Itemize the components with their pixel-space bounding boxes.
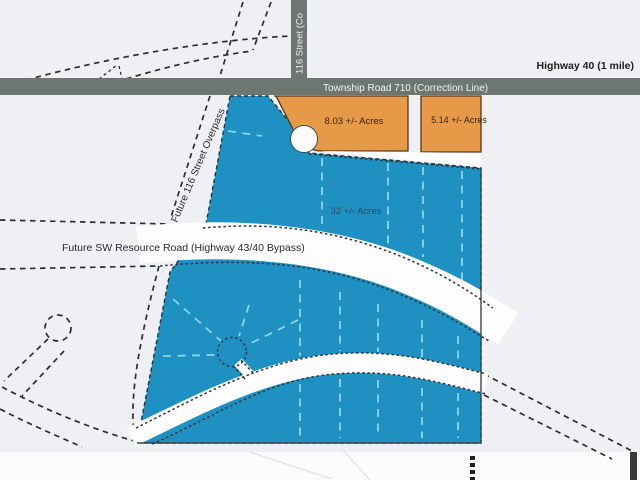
street-116-label: 116 Street (Co (295, 13, 306, 74)
orange-parcel-1-label: 8.03 +/- Acres (325, 116, 384, 127)
north-cul-de-sac-bulb (291, 126, 318, 153)
highway-40-label: Highway 40 (1 mile) (537, 60, 634, 72)
orange-parcel-2-label: 5.14 +/- Acres (431, 115, 487, 125)
township-road-band (0, 78, 640, 95)
plat-map: Township Road 710 (Correction Line) 116 … (0, 0, 640, 480)
plat-map-canvas: Township Road 710 (Correction Line) 116 … (0, 0, 640, 480)
blue-parcel-label: 32 +/- Acres (331, 206, 382, 217)
right-edge-mark (630, 452, 637, 480)
township-road-label: Township Road 710 (Correction Line) (323, 83, 488, 94)
sw-resource-road-label: Future SW Resource Road (Highway 43/40 B… (62, 242, 305, 254)
bottom-margin-strip (0, 452, 640, 480)
